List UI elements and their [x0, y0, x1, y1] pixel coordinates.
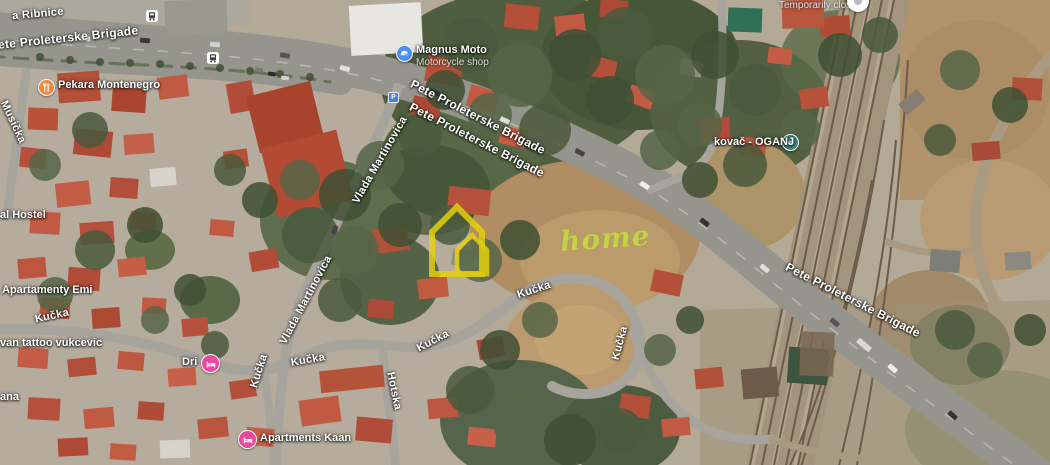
lodging-poi-icon[interactable] — [238, 430, 257, 449]
poi-name[interactable]: Pekara Montenegro — [58, 79, 160, 91]
poi-name[interactable]: Apartments Kaan — [260, 432, 351, 444]
poi-name[interactable]: kovač - OGANJ — [714, 136, 794, 148]
parking-icon[interactable]: P — [388, 92, 399, 103]
poi-name[interactable]: al Hostel — [0, 209, 46, 221]
bus-stop-icon[interactable] — [146, 9, 158, 21]
fork-knife-icon — [42, 83, 51, 92]
poi-subtitle: Motorcycle shop — [416, 57, 489, 68]
lodging-poi-icon[interactable] — [201, 354, 220, 373]
poi-name[interactable]: van tattoo vukcevic — [0, 337, 102, 349]
bus-stop-icon[interactable] — [207, 51, 219, 63]
satellite-imagery — [0, 0, 1050, 465]
restaurant-poi-icon[interactable] — [38, 79, 55, 96]
satellite-map-canvas[interactable]: a Ribnice Pete Proleterske Brigade Pete … — [0, 0, 1050, 465]
helmet-icon — [400, 49, 409, 58]
bed-icon — [206, 359, 216, 369]
poi-name[interactable]: Dri — [182, 356, 197, 368]
watermark-house-logo — [426, 196, 490, 283]
watermark-text: home — [559, 219, 652, 258]
poi-name[interactable]: Apartamenty Emi — [2, 284, 92, 296]
motorcycle-shop-poi-icon[interactable] — [396, 45, 413, 62]
poi-name[interactable]: Magnus Moto — [416, 44, 487, 56]
poi-name[interactable]: ana — [0, 391, 19, 403]
bed-icon — [243, 435, 253, 445]
